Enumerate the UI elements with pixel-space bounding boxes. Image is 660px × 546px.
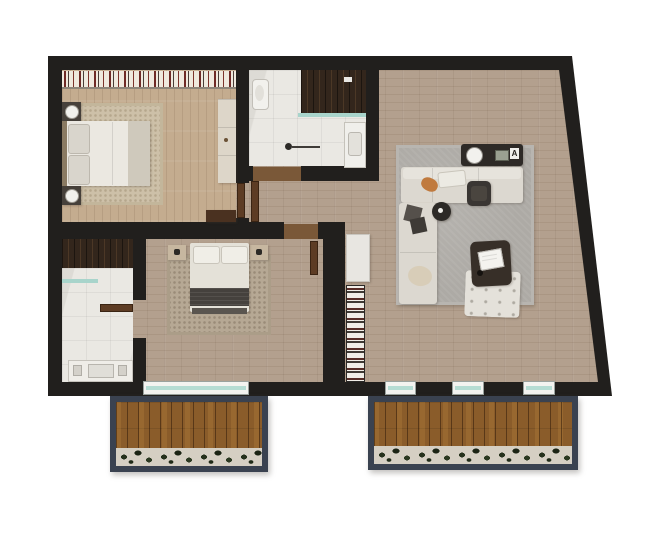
bed-foot-throw <box>128 121 150 186</box>
table-decor-icon <box>477 270 483 276</box>
window-bedroom-second <box>143 381 249 395</box>
duvet-fold <box>112 122 113 185</box>
closet-strip <box>62 71 236 89</box>
shower-glass <box>62 279 98 283</box>
door-threshold-bedroom2 <box>284 224 318 239</box>
window-glass <box>388 386 413 390</box>
cushion-white <box>437 170 467 189</box>
nightstand-decor-icon <box>256 249 262 255</box>
window-living-2 <box>452 381 484 395</box>
towel-stand-icon <box>285 143 292 150</box>
window-glass <box>146 386 246 390</box>
window-glass <box>526 386 552 390</box>
bed-pillow <box>221 246 248 264</box>
shower-dark-wood <box>301 70 366 113</box>
wall-bathroom-left-east-a <box>133 239 146 300</box>
shower-glass <box>298 113 366 117</box>
vanity-item-icon <box>73 365 82 376</box>
floor-plan: A <box>0 0 660 546</box>
vanity-item-icon <box>118 365 127 376</box>
door-threshold-bathroom-top <box>253 167 301 181</box>
door-bathroom-top <box>251 181 259 222</box>
bed-pillow <box>68 124 90 154</box>
balcony-right <box>368 396 578 470</box>
console-tag: A <box>510 148 519 159</box>
balcony-left <box>110 396 268 472</box>
window-glass <box>455 386 481 390</box>
console-display-icon <box>495 150 509 161</box>
window-living-3 <box>523 381 555 395</box>
lamp-icon <box>65 189 79 203</box>
planter-shrubs <box>116 448 262 466</box>
wall-living-west <box>323 239 345 382</box>
sink-basin <box>348 132 362 156</box>
dresser-knob-icon <box>224 138 228 142</box>
window-living-1 <box>385 381 416 395</box>
lamp-icon <box>65 105 79 119</box>
sofa-seam <box>400 252 436 253</box>
low-cabinet <box>206 210 236 222</box>
vanity-basin <box>88 364 114 378</box>
striped-shelf <box>346 285 365 382</box>
shower-control-icon <box>344 77 352 82</box>
wall-mid-b <box>318 222 345 239</box>
bed-pillow <box>68 155 90 185</box>
pillow-dark <box>410 217 428 235</box>
bed-pillow <box>193 246 220 264</box>
wall-bathroom-top-south-a <box>236 166 253 181</box>
towel-bar-icon <box>292 146 320 148</box>
wall-bathroom-left-east-b <box>133 338 146 382</box>
wall-bathroom-top-south-b <box>301 166 379 181</box>
nightstand-decor-icon <box>174 249 180 255</box>
wall-mid-a <box>62 222 284 239</box>
bed-blanket <box>190 288 249 306</box>
closet-strip-dark <box>62 239 133 268</box>
white-cabinet <box>346 234 370 282</box>
decor-plate-icon <box>466 147 483 164</box>
door-bedroom-second <box>310 241 318 275</box>
toilet-seat <box>255 85 264 101</box>
bed-foot-bench <box>192 308 247 314</box>
door-bedroom-primary <box>237 183 245 218</box>
office-chair-seat <box>471 186 487 201</box>
planter-shrubs <box>374 446 572 464</box>
bed-headboard <box>62 121 67 186</box>
wall-bathroom-top-east <box>366 70 379 181</box>
side-table-decor-icon <box>438 208 443 213</box>
door-bathroom-left <box>100 304 133 312</box>
